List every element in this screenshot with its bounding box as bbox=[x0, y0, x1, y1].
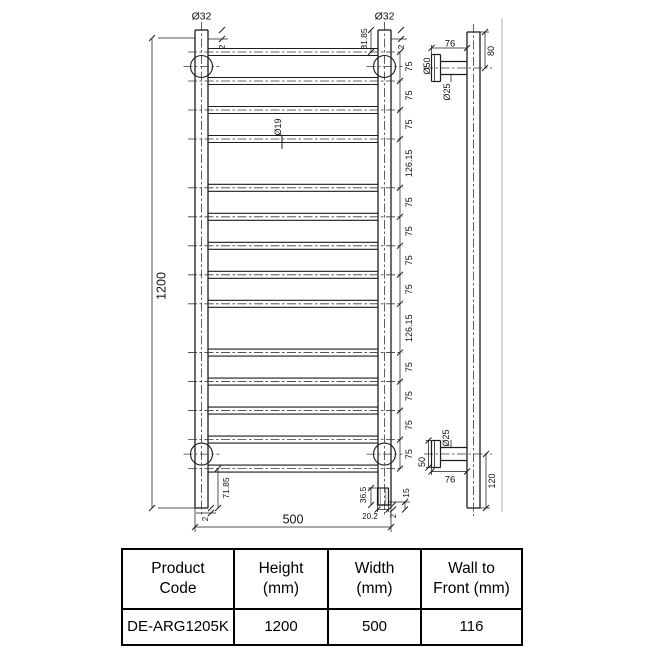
cell-width: 500 bbox=[329, 610, 422, 644]
cell-wall-to-front: 116 bbox=[422, 610, 521, 644]
header-wall-to-front: Wall to Front (mm) bbox=[422, 550, 521, 610]
dim-top-cap: 2 bbox=[396, 44, 406, 49]
dim-tube-diameter: Ø32 bbox=[192, 11, 212, 23]
dim-tube-diameter: Ø32 bbox=[375, 11, 395, 23]
dim-bracket-length: 76 bbox=[445, 38, 456, 49]
dim-spigot-cap: 2 bbox=[389, 513, 398, 518]
dim-flange-height: 50 bbox=[417, 457, 427, 467]
front-view-spacing-chain: 757575126.1575757575126.1575757575 bbox=[397, 49, 414, 472]
dim-overall-height: 1200 bbox=[154, 272, 168, 300]
header-width: Width (mm) bbox=[329, 550, 422, 610]
drawing-sheet: 1200500Ø32Ø322231.85Ø1971.85236.520.2215… bbox=[0, 0, 650, 650]
dim-top-offset: 31.85 bbox=[359, 28, 369, 50]
header-line: Front (mm) bbox=[433, 579, 510, 599]
header-line: Height bbox=[259, 559, 304, 579]
spec-table-header-row: Product Code Height (mm) Width (mm) Wall… bbox=[123, 550, 521, 610]
header-line: (mm) bbox=[263, 579, 299, 599]
spec-table-data-row: DE-ARG1205K 1200 500 116 bbox=[123, 610, 521, 644]
header-height: Height (mm) bbox=[235, 550, 329, 610]
side-view-bottom-bracket bbox=[424, 441, 492, 468]
dim-stem-diameter: Ø25 bbox=[441, 429, 451, 446]
dim-spigot-offset: 15 bbox=[401, 488, 411, 498]
dim-rung-spacing: 75 bbox=[404, 420, 414, 430]
dim-rung-diameter: Ø19 bbox=[273, 118, 283, 135]
dim-bottom-offset: 71.85 bbox=[221, 477, 231, 499]
front-view-rungs bbox=[188, 49, 403, 473]
header-line: Product bbox=[151, 559, 204, 579]
side-view bbox=[467, 18, 502, 516]
dim-flange-diameter: Ø50 bbox=[422, 57, 432, 74]
dim-top-cap: 2 bbox=[217, 44, 227, 49]
dim-top-bracket-offset: 80 bbox=[486, 46, 496, 56]
dim-stem-diameter: Ø25 bbox=[442, 83, 452, 100]
dim-rung-spacing: 75 bbox=[404, 226, 414, 236]
dim-bracket-length: 76 bbox=[445, 474, 456, 485]
header-line: Width bbox=[355, 559, 395, 579]
dim-bottom-cap: 2 bbox=[201, 516, 210, 521]
dim-spigot-diameter: 20.2 bbox=[362, 512, 378, 521]
dim-spigot-height: 36.5 bbox=[358, 486, 368, 503]
dim-rung-spacing: 75 bbox=[404, 255, 414, 265]
front-view bbox=[195, 22, 391, 516]
header-line: Code bbox=[159, 579, 196, 599]
side-view-dimensions: 7680Ø50Ø25Ø255076120 bbox=[417, 29, 497, 511]
dim-rung-spacing: 75 bbox=[404, 391, 414, 401]
dim-rung-spacing: 126.15 bbox=[404, 314, 414, 342]
front-view-spigot bbox=[378, 488, 389, 505]
spec-table: Product Code Height (mm) Width (mm) Wall… bbox=[121, 548, 523, 646]
header-line: Wall to bbox=[448, 559, 495, 579]
cell-height: 1200 bbox=[235, 610, 329, 644]
dim-rung-spacing: 126.15 bbox=[404, 150, 414, 178]
front-view-brackets bbox=[184, 56, 403, 466]
cell-product-code: DE-ARG1205K bbox=[123, 610, 235, 644]
dim-rung-spacing: 75 bbox=[404, 449, 414, 459]
dim-rung-spacing: 75 bbox=[404, 284, 414, 294]
dim-overall-width: 500 bbox=[283, 512, 304, 526]
dim-bottom-bracket-offset: 120 bbox=[487, 473, 497, 488]
dim-rung-spacing: 75 bbox=[404, 362, 414, 372]
dim-rung-spacing: 75 bbox=[404, 197, 414, 207]
header-line: (mm) bbox=[356, 579, 392, 599]
header-product-code: Product Code bbox=[123, 550, 235, 610]
dim-rung-spacing: 75 bbox=[404, 61, 414, 71]
dim-rung-spacing: 75 bbox=[404, 90, 414, 100]
dim-rung-spacing: 75 bbox=[404, 119, 414, 129]
side-view-top-bracket bbox=[424, 55, 492, 82]
